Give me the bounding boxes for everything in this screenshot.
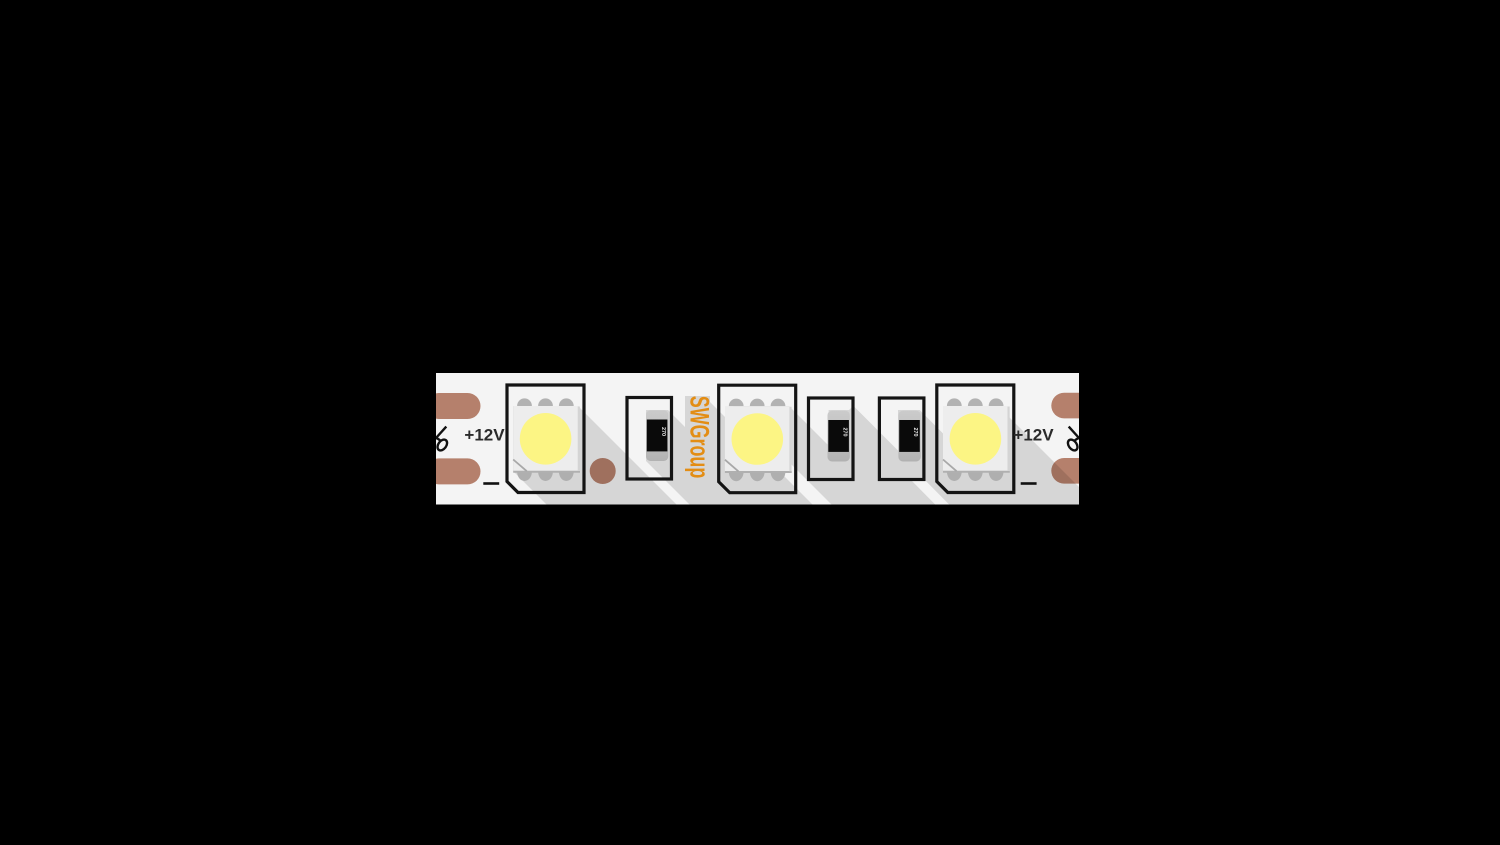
svg-text:+12V: +12V — [464, 426, 505, 445]
svg-text:+12V: +12V — [1013, 426, 1054, 445]
svg-text:270: 270 — [660, 427, 666, 436]
svg-text:SWGroup: SWGroup — [685, 396, 715, 479]
